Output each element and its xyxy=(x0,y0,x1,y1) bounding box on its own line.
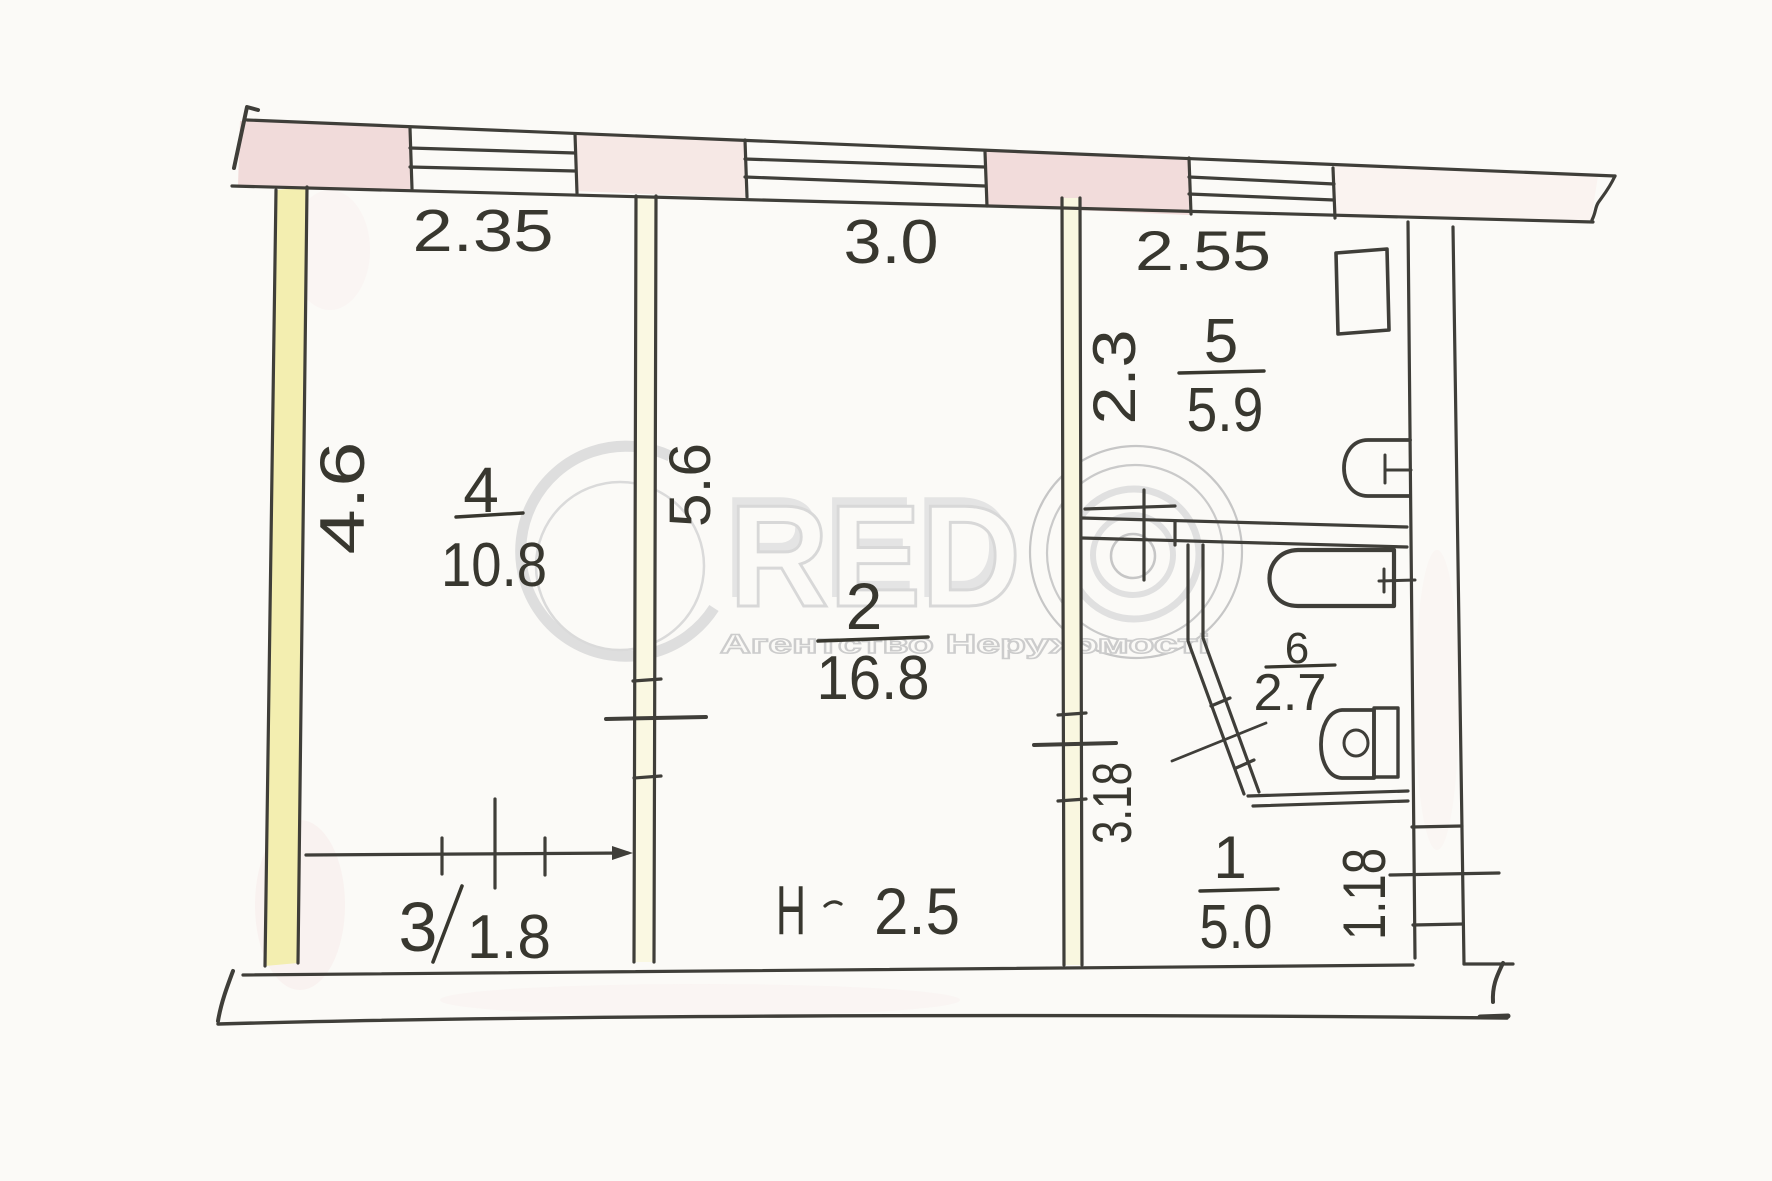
svg-text:H: H xyxy=(776,871,806,949)
svg-text:10.8: 10.8 xyxy=(441,531,547,600)
svg-text:5.6: 5.6 xyxy=(658,443,723,527)
svg-text:5.9: 5.9 xyxy=(1187,376,1264,445)
svg-text:Агентство Нерухомості: Агентство Нерухомості xyxy=(720,629,1210,659)
svg-text:16.8: 16.8 xyxy=(817,644,930,713)
svg-text:5: 5 xyxy=(1204,307,1238,376)
svg-text:1: 1 xyxy=(1213,824,1246,891)
svg-text:2: 2 xyxy=(846,569,883,643)
svg-text:2.5: 2.5 xyxy=(874,874,960,948)
svg-text:1.18: 1.18 xyxy=(1331,848,1398,940)
svg-text:5.0: 5.0 xyxy=(1200,893,1273,962)
svg-text:2.3: 2.3 xyxy=(1081,330,1148,425)
svg-text:1.8: 1.8 xyxy=(467,903,551,972)
svg-text:2.35: 2.35 xyxy=(413,198,554,264)
svg-text:3.18: 3.18 xyxy=(1081,762,1143,844)
svg-text:3.0: 3.0 xyxy=(844,208,939,277)
svg-text:4.6: 4.6 xyxy=(308,442,378,555)
svg-text:3: 3 xyxy=(399,888,438,966)
svg-text:2.55: 2.55 xyxy=(1135,219,1271,282)
svg-text:2.7: 2.7 xyxy=(1254,664,1327,722)
